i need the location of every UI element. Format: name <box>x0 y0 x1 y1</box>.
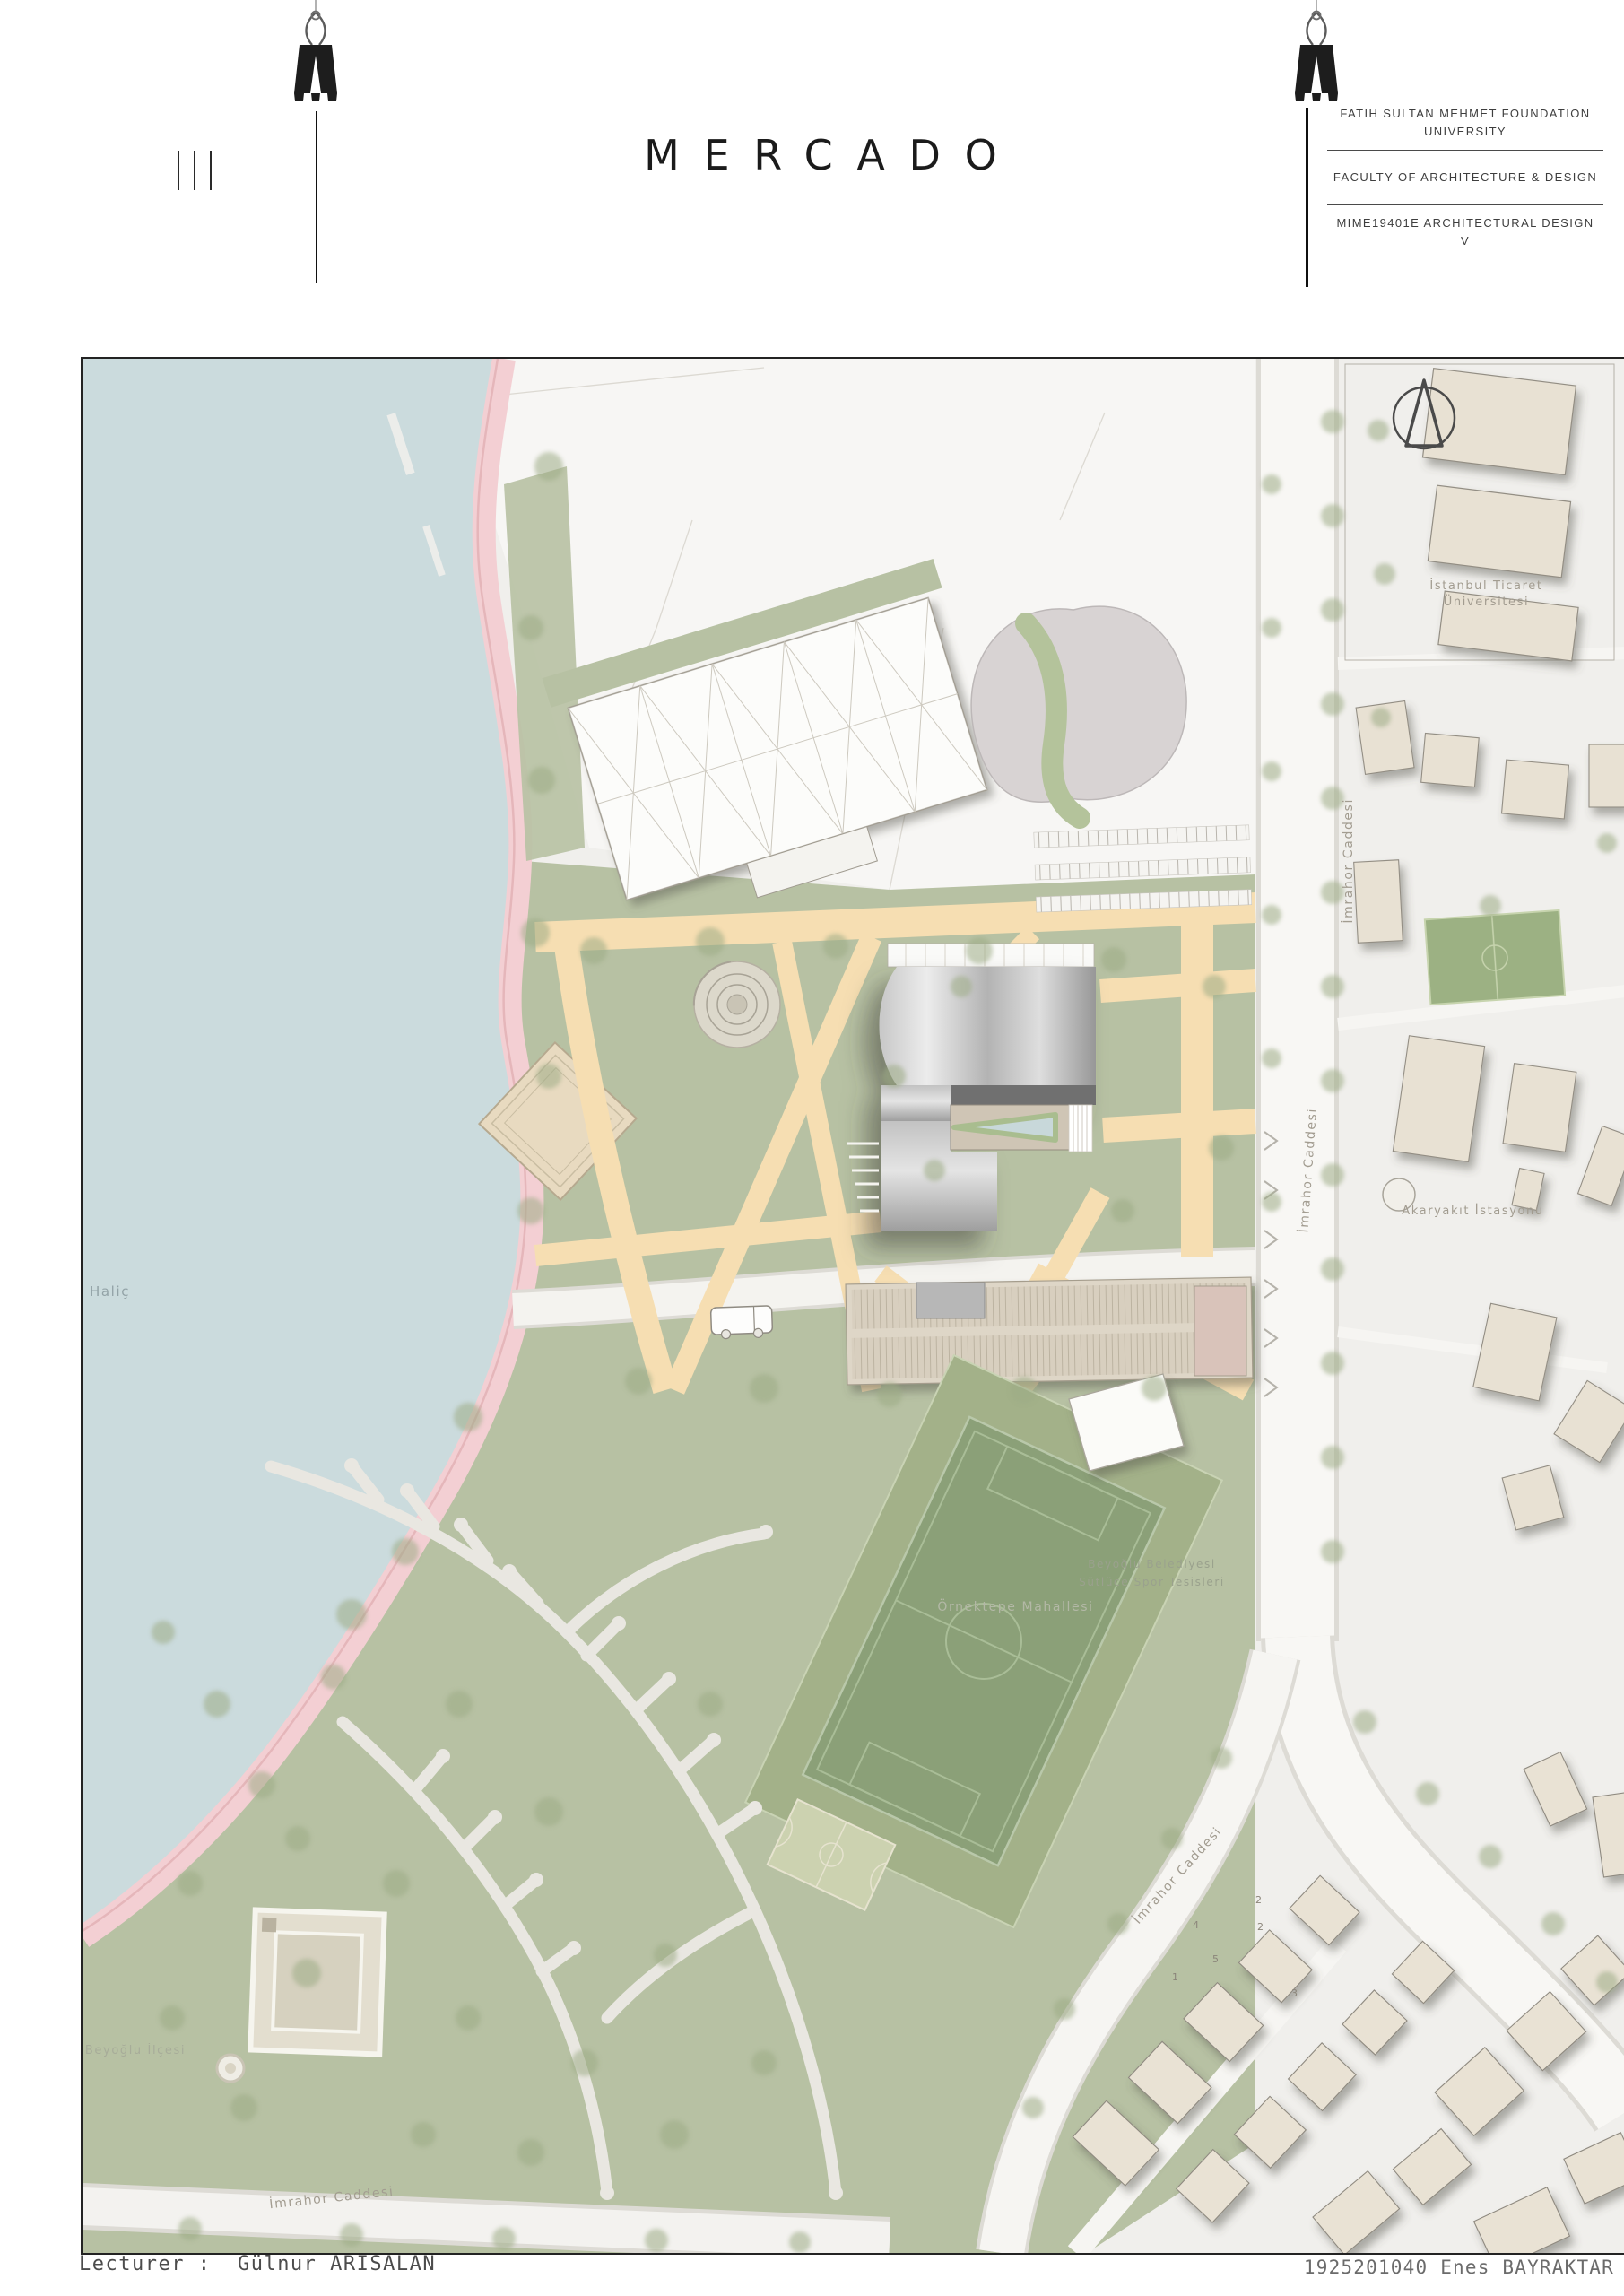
student-name: Enes BAYRAKTAR <box>1440 2257 1614 2278</box>
presentation-board: MERCADO FATIH SULTAN MEHMET FOUNDATION U… <box>0 0 1624 2296</box>
title-block: FATIH SULTAN MEHMET FOUNDATION UNIVERSIT… <box>1325 99 1605 257</box>
building-number: 2 <box>1255 1894 1262 1906</box>
site-plan: Haliç İstanbul Ticaret Üniversitesi İmra… <box>81 357 1624 2255</box>
campus-buildings <box>1423 369 1579 661</box>
binder-clip-icon <box>1291 0 1342 106</box>
building-number: 2 <box>1257 1921 1264 1933</box>
course-name: MIME19401E ARCHITECTURAL DESIGN V <box>1325 208 1605 257</box>
faculty-name: FACULTY OF ARCHITECTURE & DESIGN <box>1325 153 1605 202</box>
building-number: 1 <box>1172 1971 1178 1983</box>
building-number: 3 <box>1291 1987 1298 1999</box>
tick-mark <box>210 151 212 190</box>
parking-lot <box>1034 825 1252 912</box>
title-block-rule <box>1327 150 1603 151</box>
lecturer-name: Gülnur ARISALAN <box>238 2253 436 2275</box>
mini-pitch <box>1425 910 1565 1004</box>
student-credit: 1925201040 Enes BAYRAKTAR <box>1220 2257 1614 2278</box>
clip-string-line <box>316 111 317 283</box>
tick-mark <box>194 151 195 190</box>
market-stalls <box>846 1277 1253 1385</box>
title-block-rule <box>1327 204 1603 205</box>
gas-station-canopy <box>1383 1178 1415 1211</box>
student-id: 1925201040 <box>1304 2257 1428 2278</box>
title-block-divider <box>1306 108 1308 287</box>
lecturer-label: Lecturer : <box>79 2253 211 2275</box>
building-number: 5 <box>1212 1953 1219 1965</box>
binder-clip-icon <box>291 0 341 106</box>
university-name: FATIH SULTAN MEHMET FOUNDATION UNIVERSIT… <box>1325 99 1605 147</box>
tick-mark <box>178 151 179 190</box>
lecturer-credit: Lecturer : Gülnur ARISALAN <box>79 2253 436 2275</box>
project-title: MERCADO <box>538 131 1103 179</box>
site-plan-graphic <box>83 359 1624 2253</box>
building-number: 4 <box>1193 1919 1199 1931</box>
registration-ticks <box>178 151 212 190</box>
